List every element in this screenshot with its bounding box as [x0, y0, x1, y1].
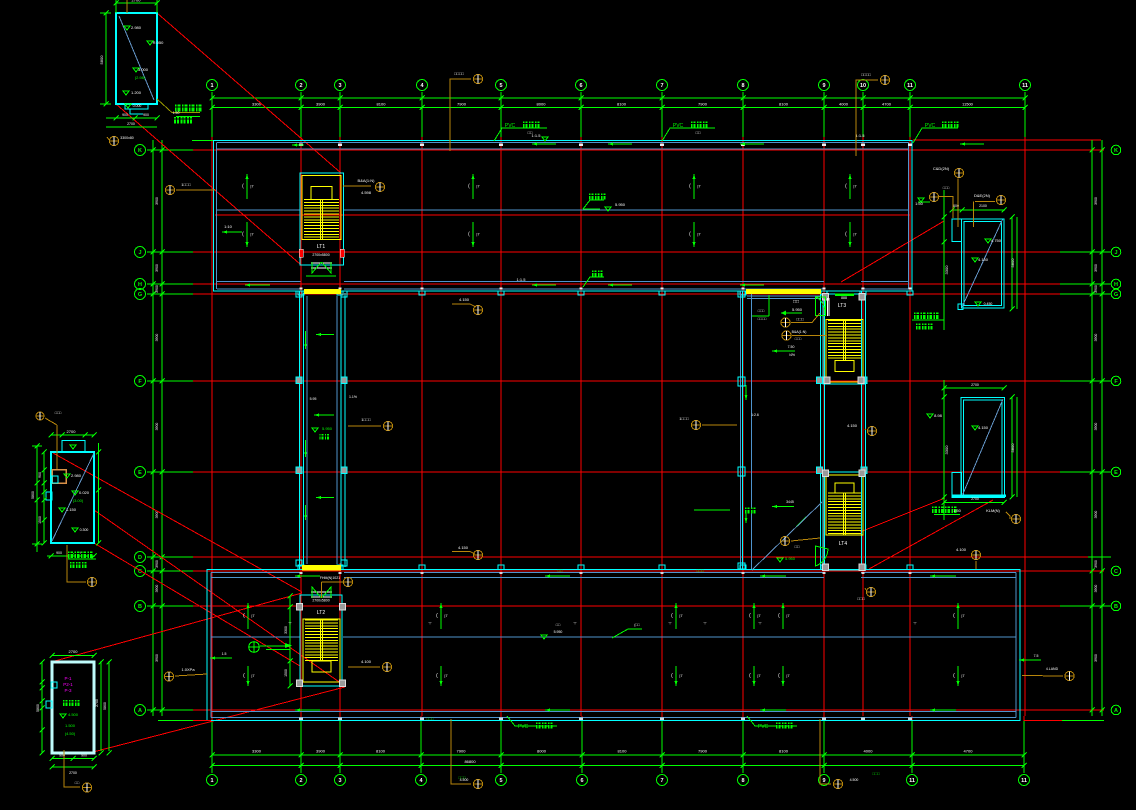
svg-text:86800: 86800 [464, 759, 476, 764]
svg-text:3900: 3900 [155, 654, 159, 662]
svg-text:□□□: □□□ [857, 596, 865, 601]
svg-text:8.98: 8.98 [934, 413, 943, 418]
svg-text:"|": "|" [704, 621, 707, 625]
svg-text:"|": "|" [759, 621, 762, 625]
svg-text:3900: 3900 [155, 423, 159, 431]
svg-text:K: K [138, 148, 142, 154]
svg-text:5: 5 [499, 778, 502, 784]
svg-text:□□□: □□□ [795, 337, 802, 341]
svg-text:/4%: /4% [789, 353, 795, 357]
svg-text:4.150: 4.150 [458, 545, 469, 550]
svg-text:1□□□: 1□□□ [181, 182, 191, 187]
svg-text:8100: 8100 [779, 749, 789, 754]
svg-text:2: 2 [299, 778, 302, 784]
svg-text:3900: 3900 [155, 334, 159, 342]
svg-text:0.020: 0.020 [79, 490, 90, 495]
svg-text:8000: 8000 [537, 102, 547, 107]
svg-text:888: 888 [841, 296, 847, 300]
svg-text:2700: 2700 [127, 122, 135, 126]
svg-text:3900: 3900 [316, 749, 326, 754]
svg-text:□□□: □□□ [796, 317, 804, 322]
svg-text:B&A(1:N): B&A(1:N) [792, 330, 807, 334]
svg-text:□□□: □□□ [872, 771, 880, 776]
svg-text:3900: 3900 [1094, 423, 1098, 431]
svg-text:2700: 2700 [95, 699, 99, 707]
svg-text:5.950: 5.950 [785, 556, 796, 561]
svg-text:□□: □□ [558, 568, 563, 573]
svg-text:7900: 7900 [698, 102, 708, 107]
svg-text:C: C [1114, 569, 1118, 575]
svg-text:A: A [138, 708, 142, 714]
svg-text:7.50: 7.50 [788, 345, 795, 349]
svg-text:PVC: PVC [518, 724, 529, 730]
svg-text:3300: 3300 [252, 749, 262, 754]
svg-text:5800: 5800 [31, 491, 35, 499]
svg-text:1.5: 1.5 [222, 652, 227, 656]
svg-text:2700: 2700 [971, 497, 979, 501]
svg-text:1: 1 [210, 778, 213, 784]
svg-text:□□□□: □□□□ [454, 71, 464, 76]
svg-text:3900: 3900 [155, 585, 159, 593]
svg-text:□□□: □□□ [696, 568, 704, 573]
svg-text:4.500: 4.500 [68, 712, 79, 717]
svg-text:(3.00): (3.00) [73, 498, 84, 503]
svg-text:3900: 3900 [1094, 334, 1098, 342]
svg-text:8000: 8000 [537, 749, 547, 754]
svg-text:P2-1: P2-1 [63, 682, 73, 687]
svg-text:3900: 3900 [1094, 197, 1098, 205]
svg-text:1500: 1500 [284, 669, 288, 677]
svg-text:3300x80: 3300x80 [120, 136, 133, 140]
svg-text:9: 9 [822, 778, 825, 784]
svg-text:3900: 3900 [155, 264, 159, 272]
svg-text:□□: □□ [793, 299, 799, 305]
svg-text:□□□: □□□ [426, 716, 434, 721]
svg-text:900: 900 [122, 113, 128, 117]
svg-text:A: A [1114, 708, 1118, 714]
svg-text:3.000: 3.000 [138, 67, 149, 72]
svg-text:7.5: 7.5 [1034, 654, 1039, 658]
svg-text:900: 900 [38, 472, 42, 478]
svg-text:H: H [1114, 282, 1118, 288]
svg-text:K: K [1114, 148, 1118, 154]
svg-text:1□□□: 1□□□ [679, 416, 689, 421]
svg-text:4.500: 4.500 [460, 778, 469, 782]
svg-text:1.200: 1.200 [131, 90, 142, 95]
svg-text:4.100: 4.100 [956, 547, 967, 552]
svg-text:4700: 4700 [964, 749, 974, 754]
svg-text:G: G [1114, 292, 1118, 298]
svg-text:1□□□: 1□□□ [361, 417, 371, 422]
svg-text:1: 1 [210, 83, 213, 89]
svg-text:11500: 11500 [962, 102, 974, 107]
svg-text:J: J [138, 250, 141, 256]
svg-text:8: 8 [741, 83, 744, 89]
svg-text:8100: 8100 [377, 102, 387, 107]
svg-text:C&D(2N): C&D(2N) [933, 166, 950, 171]
svg-text:10: 10 [860, 83, 866, 89]
svg-text:3900: 3900 [1094, 585, 1098, 593]
svg-text:3900: 3900 [1094, 511, 1098, 519]
svg-text:4.LAND: 4.LAND [1046, 667, 1059, 671]
svg-text:□□: □□ [795, 544, 800, 549]
svg-text:6: 6 [580, 778, 583, 784]
svg-text:900: 900 [143, 113, 149, 117]
svg-text:5800: 5800 [1010, 258, 1015, 268]
svg-text:11: 11 [1022, 83, 1028, 89]
svg-text:8100: 8100 [779, 102, 789, 107]
svg-text:H: H [138, 282, 142, 288]
svg-text:"|": "|" [574, 621, 577, 625]
svg-text:J: J [1114, 250, 1117, 256]
svg-text:3: 3 [338, 83, 341, 89]
svg-text:11: 11 [909, 778, 915, 784]
svg-text:2.980: 2.980 [71, 473, 82, 478]
svg-text:2700x5800: 2700x5800 [312, 253, 329, 257]
svg-text:R.050: R.050 [153, 40, 164, 45]
svg-text:2: 2 [299, 83, 302, 89]
svg-text:7900: 7900 [698, 749, 708, 754]
svg-text:1.1%: 1.1% [349, 395, 357, 399]
svg-text:P-1: P-1 [64, 676, 72, 681]
svg-text:7900: 7900 [457, 102, 467, 107]
svg-text:7: 7 [660, 778, 663, 784]
svg-text:7900: 7900 [457, 749, 467, 754]
svg-text:4000: 4000 [839, 102, 849, 107]
svg-text:8: 8 [741, 778, 744, 784]
svg-text:1:1.5: 1:1.5 [517, 277, 527, 282]
svg-text:3900: 3900 [155, 285, 159, 293]
svg-text:0.000: 0.000 [133, 104, 142, 108]
svg-text:□□: □□ [696, 130, 701, 135]
svg-text:5800: 5800 [1010, 443, 1015, 453]
svg-text:□□□□: □□□□ [758, 317, 767, 321]
svg-text:5800: 5800 [99, 55, 104, 65]
svg-text:0.300: 0.300 [80, 528, 89, 532]
svg-text:3900: 3900 [316, 102, 326, 107]
svg-text:5.950: 5.950 [322, 426, 333, 431]
svg-text:1.150: 1.150 [66, 507, 77, 512]
svg-text:8100: 8100 [618, 749, 628, 754]
svg-text:5800: 5800 [36, 704, 40, 712]
svg-text:"|": "|" [289, 621, 292, 625]
svg-text:6: 6 [579, 83, 582, 89]
svg-text:9: 9 [822, 83, 825, 89]
svg-text:900: 900 [81, 754, 87, 758]
svg-text:5: 5 [499, 83, 502, 89]
svg-text:2700: 2700 [132, 0, 142, 3]
svg-text:1:50: 1:50 [173, 111, 180, 115]
svg-text:2700: 2700 [67, 429, 77, 434]
svg-text:□□□: □□□ [55, 411, 62, 415]
svg-text:11: 11 [907, 83, 913, 89]
svg-text:"|": "|" [429, 621, 432, 625]
svg-text:2.980: 2.980 [131, 25, 142, 30]
svg-text:4.750: 4.750 [991, 238, 1002, 243]
svg-text:1:50: 1:50 [953, 508, 962, 513]
svg-text:5800: 5800 [103, 702, 107, 710]
svg-text:3900: 3900 [1094, 654, 1098, 662]
svg-text:4.100: 4.100 [361, 659, 372, 664]
svg-text:G: G [138, 292, 142, 298]
svg-text:3900: 3900 [1094, 560, 1098, 568]
svg-text:2700: 2700 [69, 649, 79, 654]
svg-text:D&E(2N): D&E(2N) [974, 193, 991, 198]
svg-text:1:10: 1:10 [224, 224, 233, 229]
svg-text:E: E [1114, 470, 1118, 476]
svg-text:□□□: □□□ [943, 186, 950, 190]
svg-text:2100: 2100 [979, 204, 987, 208]
svg-text:5.950: 5.950 [792, 307, 803, 312]
svg-text:B&A(1:N): B&A(1:N) [358, 178, 376, 183]
svg-text:3: 3 [338, 778, 341, 784]
svg-text:E: E [138, 470, 142, 476]
svg-text:4.150: 4.150 [459, 297, 470, 302]
svg-text:4.150: 4.150 [978, 257, 989, 262]
svg-text:1.500: 1.500 [65, 723, 76, 728]
svg-text:1.0XPa: 1.0XPa [181, 667, 195, 672]
svg-text:3900: 3900 [1094, 264, 1098, 272]
svg-text:PVC: PVC [925, 123, 936, 129]
svg-text:3900: 3900 [155, 197, 159, 205]
svg-text:3300: 3300 [944, 265, 949, 275]
svg-text:2700: 2700 [971, 383, 979, 387]
svg-text:3300: 3300 [284, 626, 288, 634]
svg-text:3445: 3445 [786, 500, 794, 504]
svg-text:3900: 3900 [1094, 285, 1098, 293]
svg-text:1:1.5: 1:1.5 [856, 133, 866, 138]
svg-text:900: 900 [56, 551, 62, 555]
svg-text:5.950: 5.950 [554, 630, 563, 634]
svg-text:1500: 1500 [38, 516, 42, 524]
svg-text:KLM(N): KLM(N) [986, 508, 1000, 513]
svg-text:7: 7 [660, 83, 663, 89]
svg-text:D: D [138, 555, 142, 561]
svg-text:B: B [1114, 604, 1118, 610]
svg-text:P-3: P-3 [64, 688, 72, 693]
svg-text:"|": "|" [914, 621, 917, 625]
svg-text:8100: 8100 [376, 749, 386, 754]
svg-text:0.450: 0.450 [984, 302, 993, 306]
svg-text:5.950: 5.950 [615, 202, 626, 207]
svg-text:(2.98): (2.98) [135, 75, 146, 80]
svg-text:LT2: LT2 [317, 610, 325, 616]
svg-text:4.150: 4.150 [847, 423, 858, 428]
svg-text:8100: 8100 [617, 102, 627, 107]
svg-text:□□□□: □□□□ [861, 72, 871, 77]
svg-text:4.598: 4.598 [361, 190, 372, 195]
svg-text:B: B [138, 604, 142, 610]
svg-text:□□□: □□□ [758, 309, 765, 313]
svg-text:2700x5800: 2700x5800 [312, 599, 329, 603]
svg-text:LT3: LT3 [838, 303, 846, 309]
svg-text:4700: 4700 [882, 102, 892, 107]
svg-text:PVC: PVC [673, 123, 684, 129]
svg-text:1:2.6: 1:2.6 [751, 413, 759, 417]
svg-text:4.150: 4.150 [978, 425, 989, 430]
svg-text:(4.50): (4.50) [65, 731, 76, 736]
svg-text:LT4: LT4 [839, 541, 847, 547]
svg-text:4.500: 4.500 [850, 778, 859, 782]
svg-text:2700: 2700 [69, 771, 77, 775]
svg-text:5.95: 5.95 [310, 397, 317, 401]
svg-text:(□□: (□□ [634, 623, 640, 627]
svg-text:FHM(N)1021: FHM(N)1021 [320, 576, 340, 580]
svg-text:"|": "|" [669, 621, 672, 625]
svg-text:1:1.5: 1:1.5 [532, 133, 542, 138]
svg-text:LT1: LT1 [317, 244, 325, 250]
svg-text:4000: 4000 [864, 749, 874, 754]
svg-text:11: 11 [1021, 778, 1027, 784]
svg-text:PVC: PVC [758, 724, 769, 730]
svg-text:3900: 3900 [155, 560, 159, 568]
svg-text:PVC: PVC [505, 123, 516, 129]
svg-text:3300: 3300 [944, 445, 949, 455]
